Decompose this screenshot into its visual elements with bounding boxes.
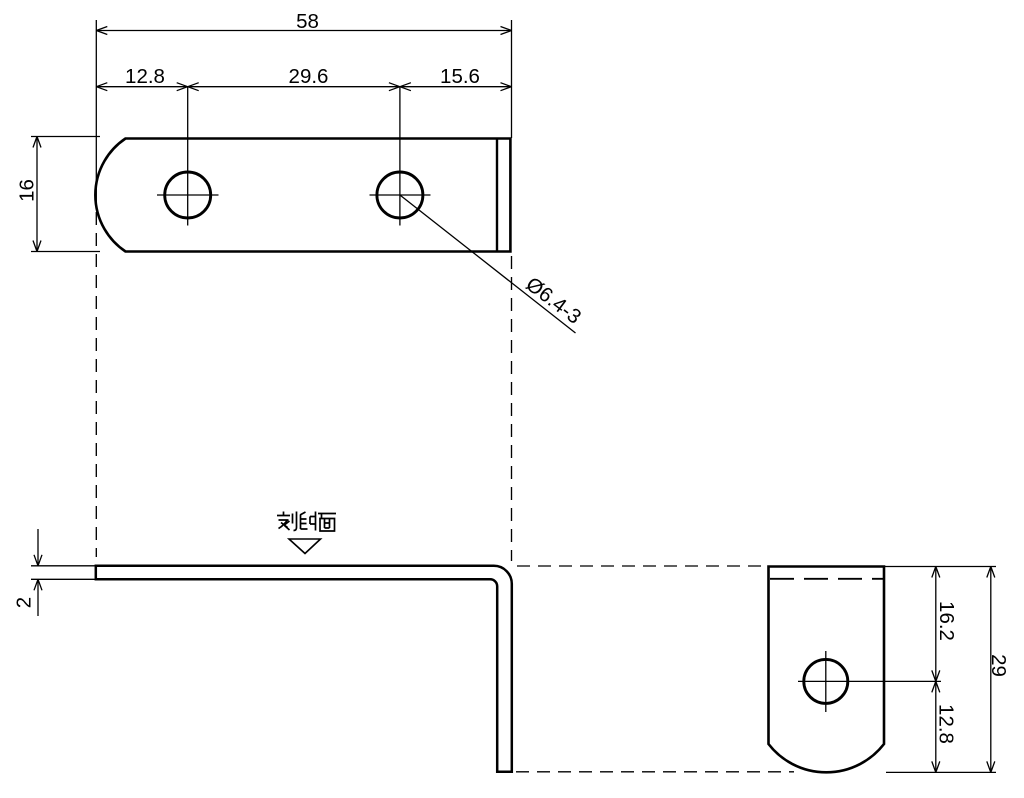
svg-text:16: 16 bbox=[16, 179, 39, 202]
svg-text:15.6: 15.6 bbox=[440, 65, 480, 88]
svg-text:16.2: 16.2 bbox=[935, 601, 958, 641]
svg-text:2: 2 bbox=[13, 597, 36, 608]
svg-text:12.8: 12.8 bbox=[125, 65, 165, 88]
svg-text:Ø6.4-3: Ø6.4-3 bbox=[521, 273, 585, 329]
svg-text:12.8: 12.8 bbox=[935, 704, 958, 744]
svg-text:29.6: 29.6 bbox=[289, 65, 329, 88]
svg-text:58: 58 bbox=[296, 10, 319, 33]
svg-text:29: 29 bbox=[987, 654, 1010, 677]
